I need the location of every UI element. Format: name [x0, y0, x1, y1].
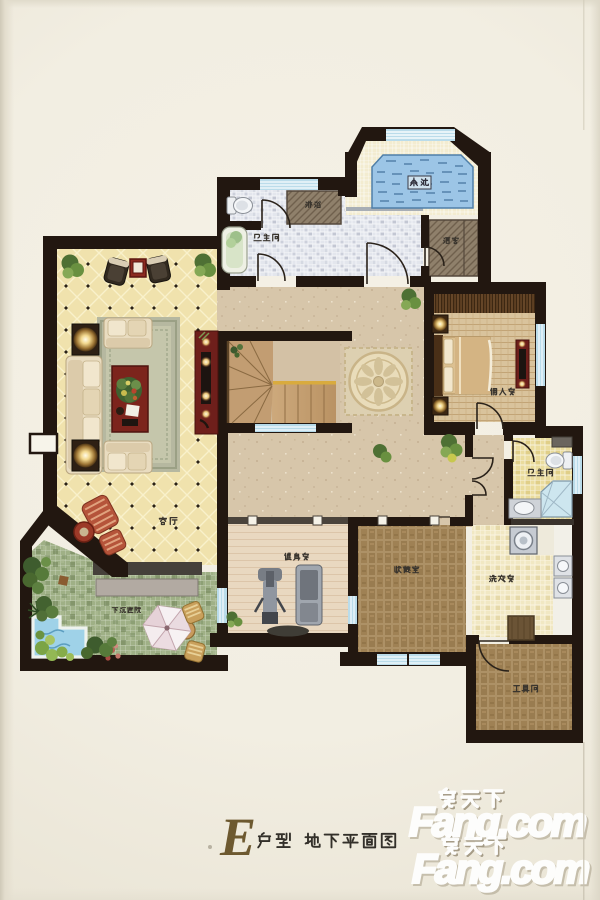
- svg-text:E: E: [219, 807, 256, 867]
- svg-text:Fang.com: Fang.com: [412, 846, 589, 892]
